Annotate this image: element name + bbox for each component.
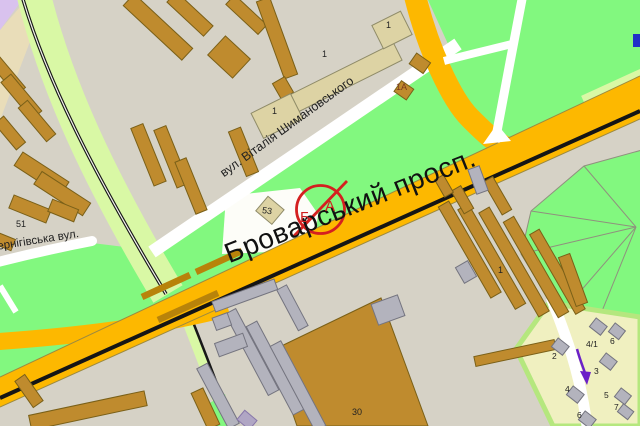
building-number-5: 5 — [604, 391, 609, 400]
building-number-53: 53 — [261, 206, 272, 217]
building — [372, 11, 412, 49]
placemark-letter-a[interactable]: А — [325, 199, 335, 216]
building-number-4-1: 4/1 — [586, 340, 598, 349]
building-number-1-low: 1 — [272, 107, 277, 117]
building-number-1-mid: 1 — [322, 50, 327, 60]
building-number-1-industrial: 1 — [498, 266, 503, 276]
map-canvas[interactable]: Броварський просп. вул. Віталія Шимановс… — [0, 0, 640, 426]
building-number-51: 51 — [16, 220, 26, 230]
building-number-4: 4 — [565, 385, 570, 394]
building — [0, 116, 26, 150]
building-number-1-top: 1 — [386, 21, 391, 31]
building-number-30: 30 — [352, 408, 362, 418]
building — [277, 285, 308, 331]
building — [256, 0, 297, 79]
building-number-3: 3 — [594, 367, 599, 376]
building — [237, 410, 257, 426]
building — [29, 391, 148, 426]
building-number-2: 2 — [552, 352, 557, 361]
building-number-6-bottom: 6 — [577, 411, 582, 420]
placemark-letter-b[interactable]: Б — [300, 210, 310, 227]
map-edge-blue-glyph — [633, 34, 640, 47]
building — [208, 36, 251, 78]
building-number-1a: 1А — [396, 83, 407, 93]
building-number-6-top: 6 — [610, 337, 615, 346]
building-number-7: 7 — [614, 403, 619, 412]
building — [215, 333, 248, 356]
